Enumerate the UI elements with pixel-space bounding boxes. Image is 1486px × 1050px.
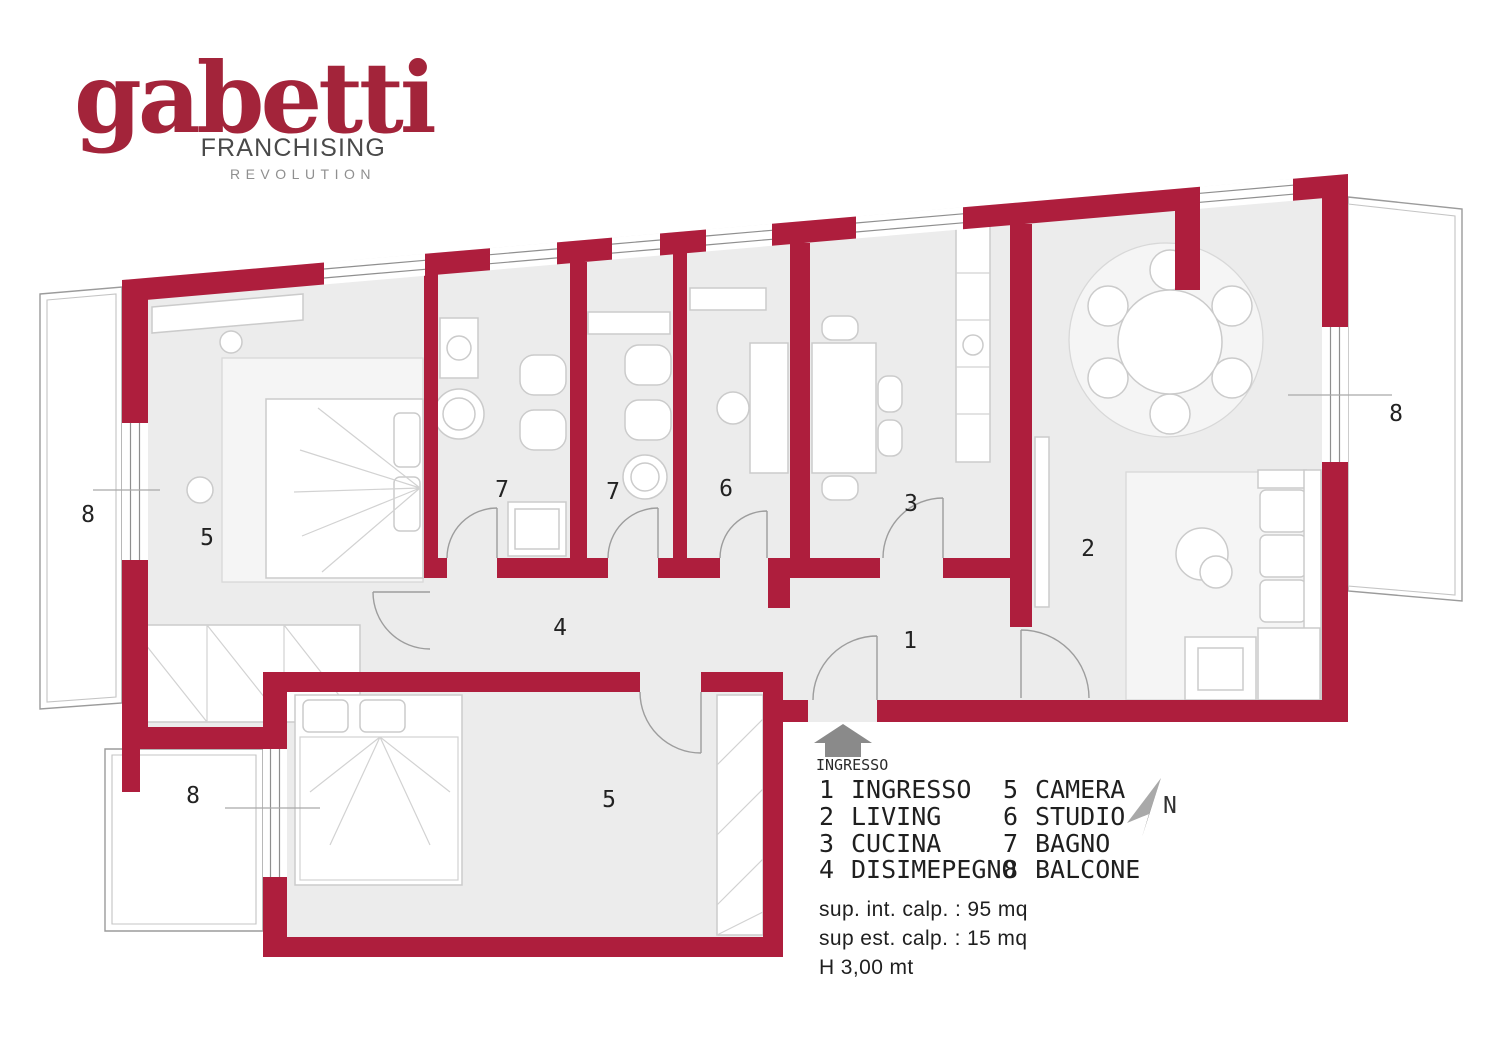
wardrobe-bedroom-bottom [717,695,763,935]
room-label-balcone-1: 8 [81,502,95,528]
room-label-living: 2 [1081,536,1095,562]
legend-item-camera: 5CAMERA [1003,776,1140,803]
legend-item-living: 2LIVING [819,803,1017,830]
legend-item-ingresso: 1INGRESSO [819,776,1017,803]
measurements-block: sup. int. calp. : 95 mq sup est. calp. :… [819,895,1028,982]
legend-item-studio: 6STUDIO [1003,803,1140,830]
legend-item-disimpegno: 4DISIMEPEGNO [819,856,1017,883]
legend-column-2: 5CAMERA 6STUDIO 7BAGNO 8BALCONE [1003,776,1140,883]
legend-item-bagno: 7BAGNO [1003,830,1140,857]
height-value: H 3,00 mt [819,953,1028,982]
north-label: N [1163,793,1177,819]
entrance-marker: INGRESSO [814,724,888,774]
surface-external: sup est. calp. : 15 mq [819,924,1028,953]
balcony-right [1348,197,1462,601]
surface-internal: sup. int. calp. : 95 mq [819,895,1028,924]
legend-item-cucina: 3CUCINA [819,830,1017,857]
entrance-label: INGRESSO [816,756,888,774]
room-label-camera-2: 5 [602,787,616,813]
room-label-bagno-2: 7 [606,479,620,505]
room-label-studio: 6 [719,476,733,502]
room-label-balcone-3: 8 [1389,401,1403,427]
floorplan-page: gabetti FRANCHISING REVOLUTION [0,0,1486,1050]
floor-plan-drawing: 1 2 3 4 5 5 6 7 7 8 8 8 INGRESSO N [0,0,1486,1050]
room-label-disimpegno: 4 [553,615,567,641]
entrance-arrow-icon [814,724,872,757]
room-label-bagno-1: 7 [495,477,509,503]
balcony-left [40,287,122,709]
room-label-camera-1: 5 [200,525,214,551]
room-label-balcone-2: 8 [186,783,200,809]
room-label-ingresso: 1 [903,628,917,654]
legend-item-balcone: 8BALCONE [1003,856,1140,883]
room-label-cucina: 3 [904,491,918,517]
legend-column-1: 1INGRESSO 2LIVING 3CUCINA 4DISIMEPEGNO [819,776,1017,883]
